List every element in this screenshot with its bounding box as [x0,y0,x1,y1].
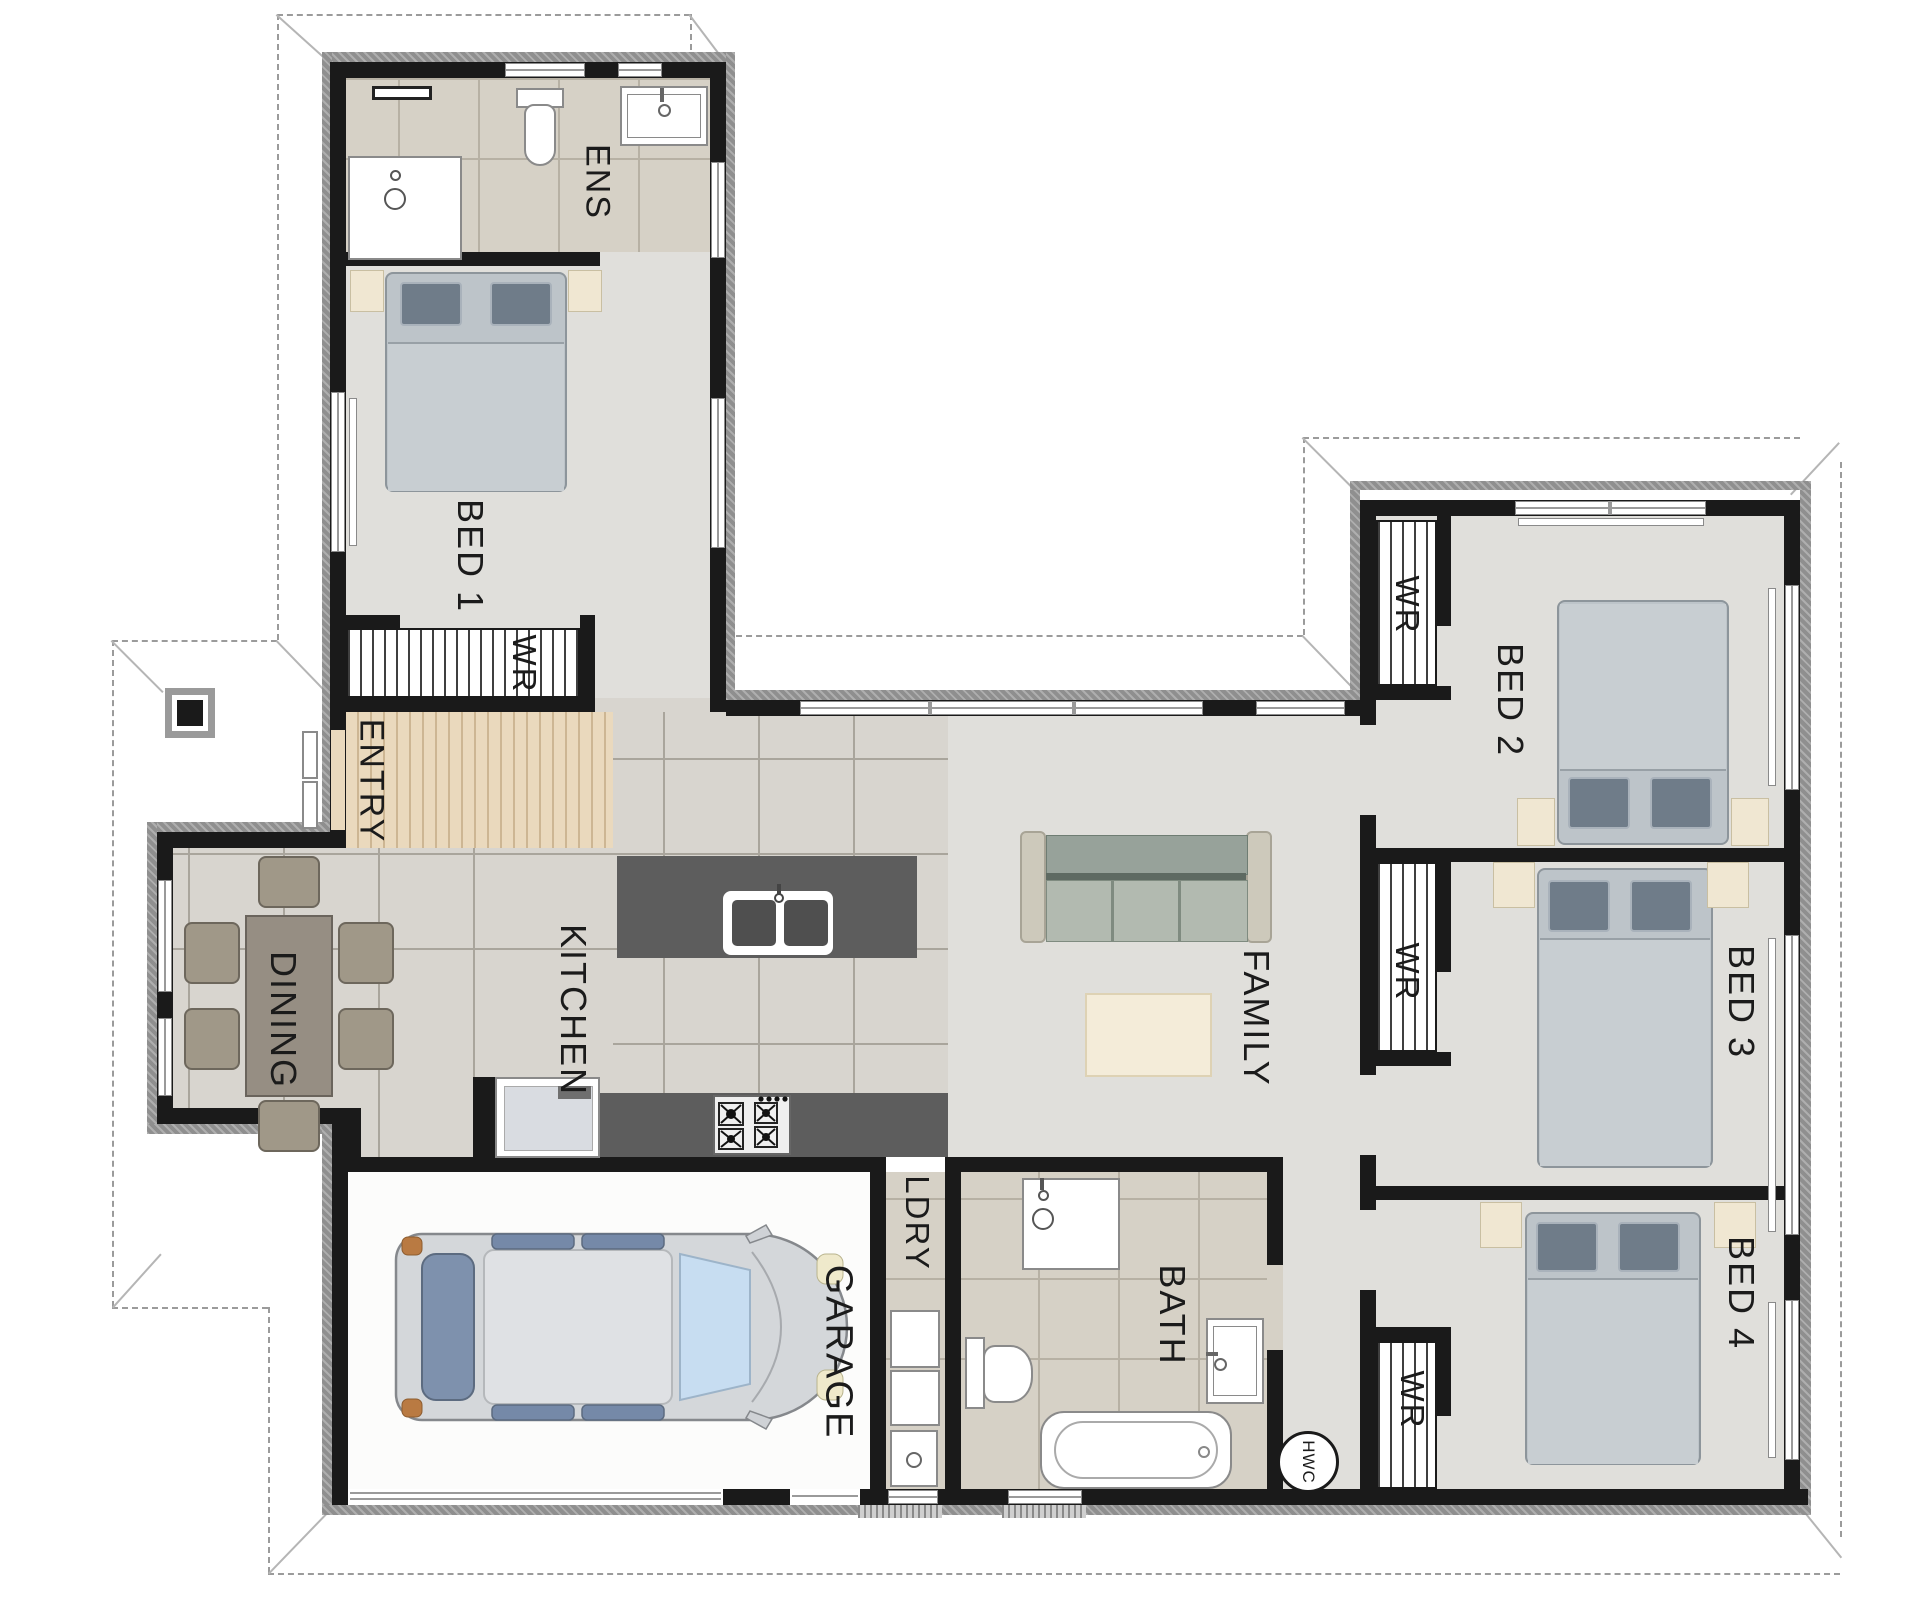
wall [1360,500,1376,1489]
porch-post-core [177,700,203,726]
garage-door-line [350,1498,721,1500]
hwc-label: HWC [1298,1440,1318,1484]
window-mullion [1072,701,1076,715]
door-opening-bed4 [1360,1210,1376,1290]
window [1785,935,1799,1235]
exterior-trim [1350,490,1360,716]
roofline-dash [1303,437,1800,439]
wall [710,62,726,712]
wall [1376,848,1784,862]
window [1785,585,1799,790]
pillow [1650,777,1712,829]
toilet-cistern [965,1337,985,1409]
curtain-strip [1768,938,1776,1232]
door-opening-ens [600,252,710,266]
wall [1437,862,1451,972]
roofline-dash [112,1307,268,1309]
dining-label: DINING [262,951,304,1089]
exterior-trim [147,822,157,1124]
roofline-dash [1840,462,1842,1537]
bath-label: BATH [1151,1264,1193,1365]
wr-bed2-label: WR [1388,576,1426,635]
dining-chair [338,1008,394,1070]
floor-plan: ENS BED 1 WR ENTRY DINING KITCHEN FAMILY… [0,0,1920,1604]
wall [945,1157,961,1489]
bedside-table [1517,798,1555,846]
garage-side-door-line [792,1495,858,1497]
exterior-trim [1800,490,1811,1515]
wall [361,1157,886,1172]
dining-chair [258,1100,320,1152]
wall [1376,686,1451,700]
laundry-tub-drain [906,1452,922,1468]
wall [1376,1186,1784,1200]
front-door-opening [331,730,345,830]
wall [580,615,595,712]
sofa-armrest [1246,831,1272,943]
wr-bed1-label: WR [505,635,543,694]
bathtub-inner [1054,1421,1218,1479]
sofa-back [1046,835,1248,875]
window-sill-deck [1002,1505,1086,1518]
car [362,1224,862,1430]
ldry-label: LDRY [898,1175,936,1270]
pillow [1630,880,1692,932]
exterior-trim [322,1124,332,1505]
bed4-label: BED 4 [1720,1236,1762,1350]
roofline-dash [1303,437,1305,635]
window [331,392,345,552]
bedside-table [1480,1202,1522,1248]
front-door-leaf [302,781,318,829]
bedside-table [1707,862,1749,908]
dining-chair [258,856,320,908]
window [711,398,725,548]
window [711,162,725,258]
cooktop [713,1095,791,1155]
dining-chair [184,1008,240,1070]
garage-door-line [350,1492,721,1494]
wall [330,698,580,712]
roofline-dash [112,640,277,642]
shower-head-icon [384,188,406,210]
window [888,1490,938,1504]
roof-hip-line [112,1253,162,1308]
bedside-table [568,270,602,312]
vanity-tap-icon [1214,1358,1227,1371]
wall [961,1157,1283,1172]
window [1785,1300,1799,1460]
wall [157,832,346,848]
garage-label: GARAGE [817,1265,860,1440]
wr-bed3-label: WR [1388,943,1426,1002]
window [505,63,585,77]
roof-hip-line [268,1507,333,1575]
sink-tap-icon [774,893,784,903]
wall [473,1077,495,1157]
wr-bed4-label: WR [1393,1371,1431,1430]
wall [1376,1327,1451,1341]
bedside-table [1731,798,1769,846]
shower-tap-icon [1038,1190,1049,1201]
bedside-table [1493,862,1535,908]
bed3-label: BED 3 [1720,945,1762,1059]
rug [1085,993,1212,1077]
shower-tap-icon [390,170,401,181]
shower [348,156,462,260]
dining-chair [338,922,394,984]
vanity-tap-icon [660,88,664,102]
sofa-armrest [1020,831,1046,943]
bed2-label: BED 2 [1489,643,1531,757]
bed3-sheet [1540,938,1710,1166]
vanity-tap-icon [1206,1352,1218,1356]
window [158,880,172,992]
sink-basin [784,900,828,946]
pillow [1536,1222,1598,1272]
wall [1437,1341,1451,1416]
roofline-dash [726,635,1303,637]
front-door-leaf [302,731,318,779]
entry-label: ENTRY [352,719,391,844]
roofline-dash [268,1573,1840,1575]
pillow [1548,880,1610,932]
shower-head-icon [1032,1208,1054,1230]
pillow [490,282,552,326]
bedside-table [350,270,384,312]
window-mullion [1608,501,1612,515]
family-label: FAMILY [1235,949,1277,1086]
curtain-strip [1518,518,1704,526]
curtain-strip [1768,1302,1776,1458]
door-opening-bed3 [1360,1075,1376,1155]
laundry-cabinet [890,1370,940,1426]
window [618,63,662,77]
wall [1376,1052,1451,1066]
bed4-sheet [1528,1278,1698,1464]
ens-label: ENS [578,144,617,220]
sink-basin [732,900,776,946]
laundry-cabinet [890,1310,940,1368]
door-opening-bed1 [595,698,710,712]
exterior-trim [726,52,735,700]
wardrobe-rail-bed1 [346,628,580,698]
pillow [400,282,462,326]
wall [346,615,400,628]
window [1008,1490,1082,1504]
wall [870,1157,886,1489]
exterior-trim [726,690,1360,700]
toilet-bowl [983,1345,1033,1403]
bed2-sheet [1560,604,1726,771]
sofa-back-edge [1046,873,1246,880]
wall [1437,516,1451,626]
roof-hip-line [111,640,164,693]
garage-side-door [790,1489,860,1505]
roofline-dash [277,14,279,640]
mirror [372,86,432,100]
dining-chair [184,922,240,984]
exterior-trim [322,52,734,62]
roofline-dash [268,1307,270,1573]
pillow [1568,777,1630,829]
curtain-strip [349,398,357,546]
pillow [1618,1222,1680,1272]
curtain-strip [1768,588,1776,786]
shower-tap-icon [1040,1178,1044,1190]
bed1-sheet [388,342,564,491]
sofa-seats [1046,880,1248,942]
exterior-trim [1350,481,1811,490]
window [158,1018,172,1096]
bed1-label: BED 1 [449,499,491,613]
toilet-bowl [524,104,556,166]
window-sill-deck [858,1505,942,1518]
wall [332,1124,348,1505]
roofline-dash [112,640,114,1307]
kitchen-label: KITCHEN [552,924,594,1096]
window-mullion [928,701,932,715]
door-opening-bath [1267,1265,1283,1350]
roofline-dash [277,14,690,16]
door-opening-bed2 [1360,725,1376,815]
bathtub-drain [1198,1446,1210,1458]
window [1256,701,1345,715]
vanity-tap-icon [658,104,671,117]
window-sliding-family [800,701,1203,715]
